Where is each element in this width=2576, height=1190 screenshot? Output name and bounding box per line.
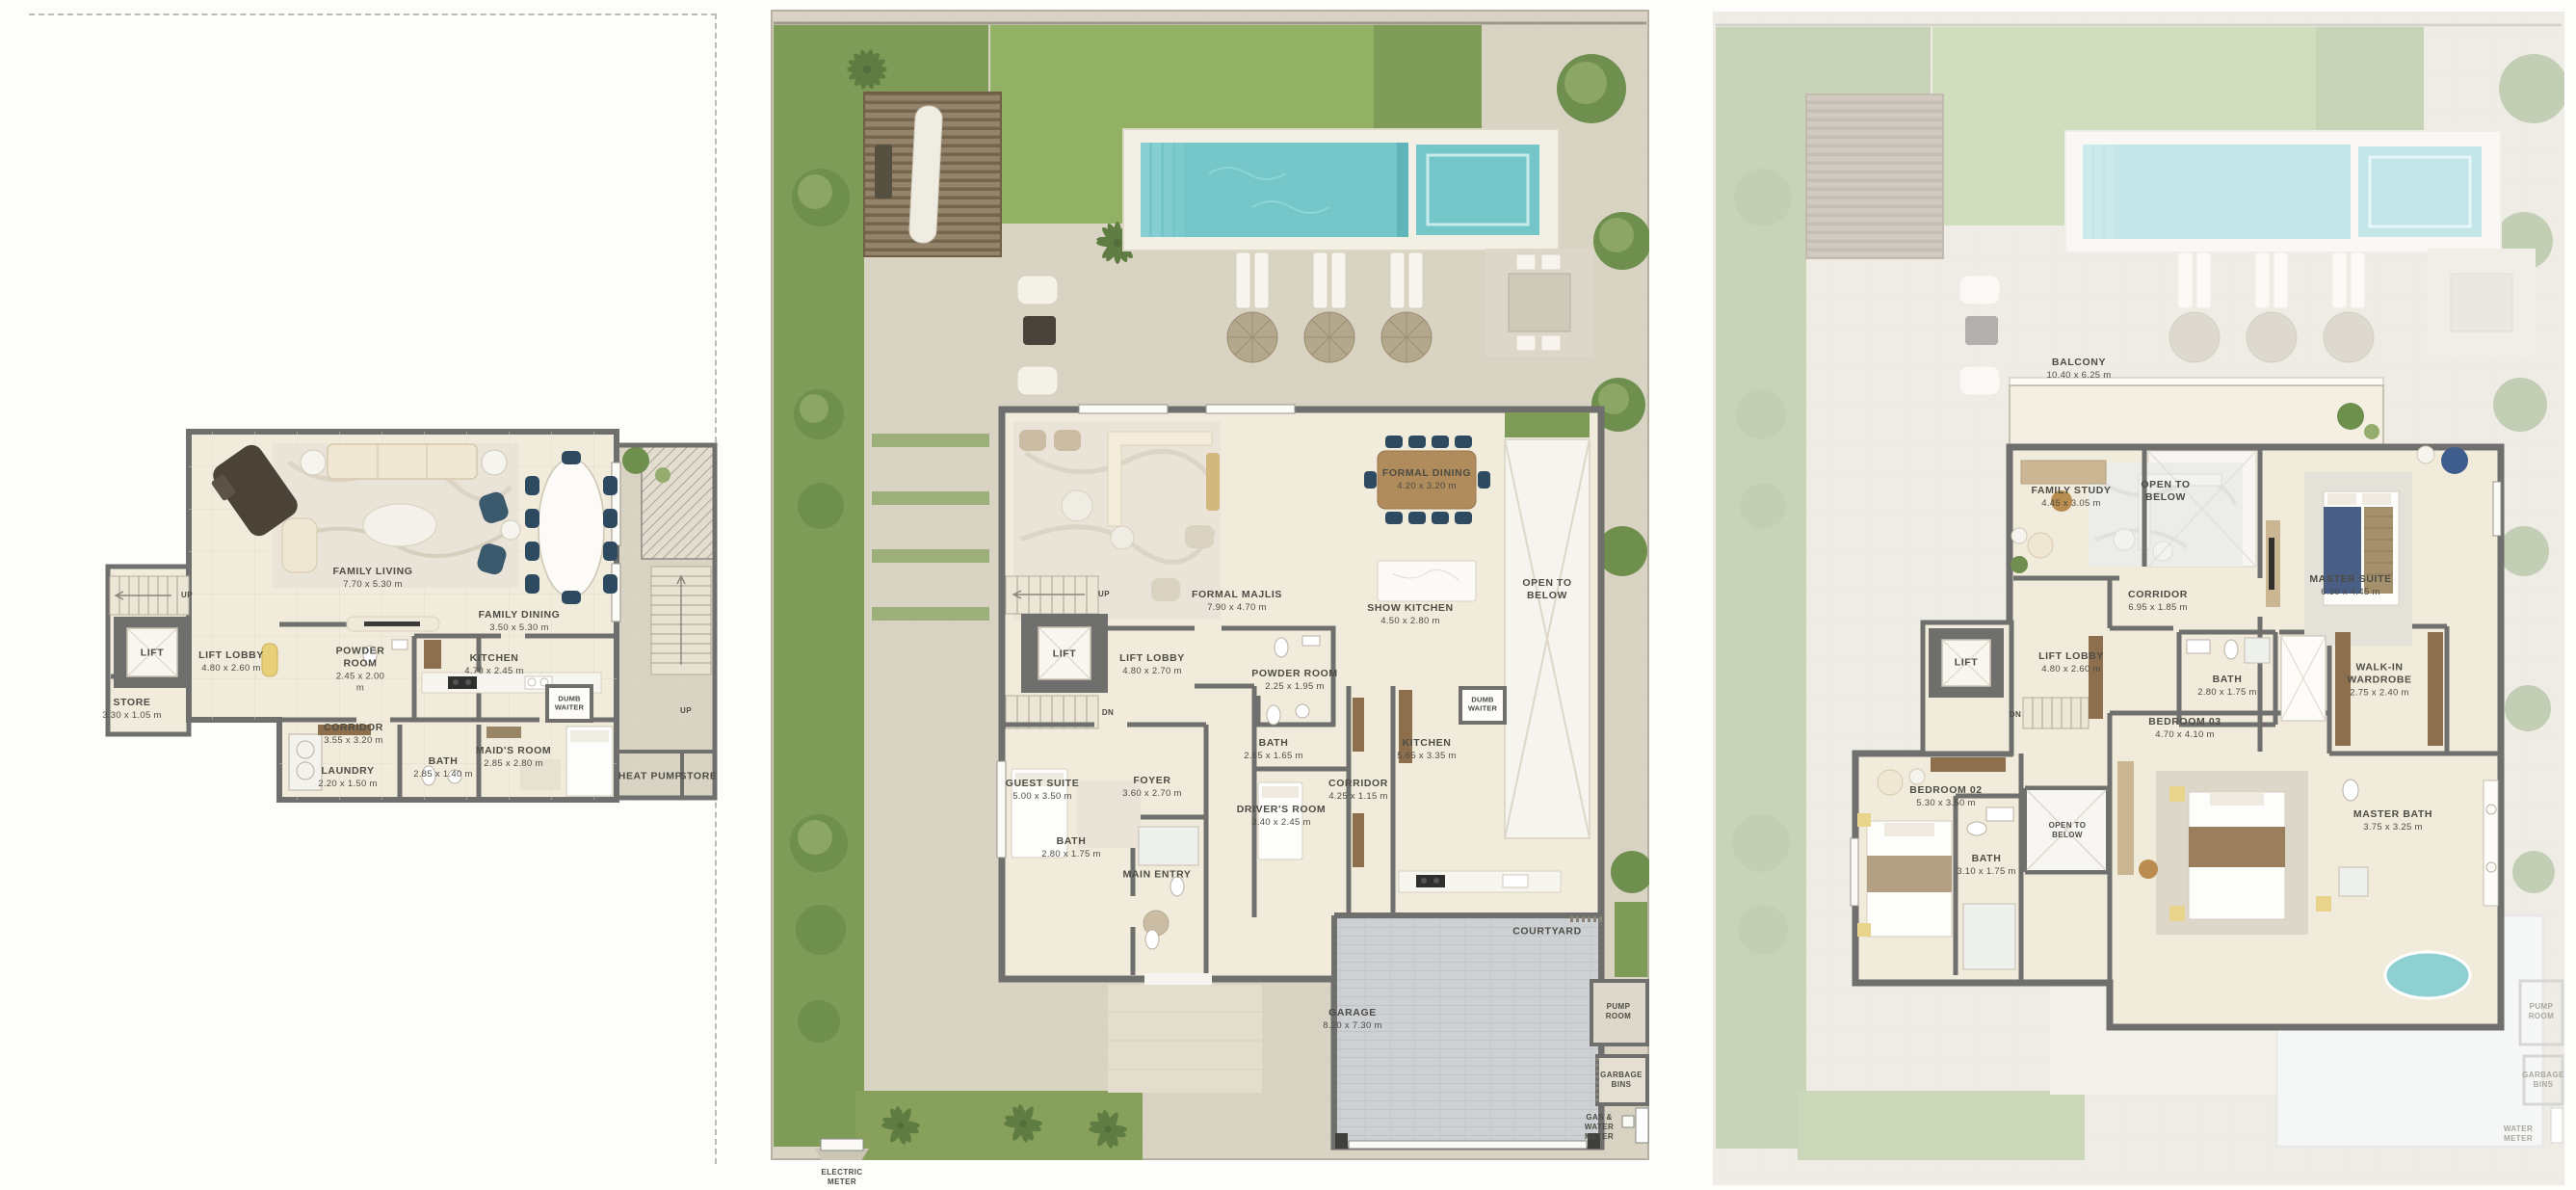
dumb-waiter-box <box>547 686 591 721</box>
terrace-plant <box>622 447 649 474</box>
courtyard-planter <box>1615 902 1647 977</box>
window <box>1206 405 1295 413</box>
pump-room-box <box>1591 981 1647 1045</box>
podium-terrace <box>617 443 715 800</box>
balcony-floor <box>2010 385 2383 449</box>
room-label-electric-meter: ELECTRIC METER <box>813 1168 871 1187</box>
terrace-stairs <box>651 567 711 674</box>
lift-shaft <box>114 617 191 688</box>
floor-plan-sheet: FAMILY LIVING7.70 x 5.30 m FAMILY DINING… <box>0 0 2576 1190</box>
window <box>612 463 620 545</box>
kids-pool <box>1416 145 1539 235</box>
garbage-bins-box <box>1597 1056 1647 1104</box>
entry-path <box>1108 985 1262 1093</box>
show-kitchen-island <box>1378 561 1476 601</box>
gas-water-meter-box <box>1636 1108 1648 1143</box>
lobby-console <box>262 644 277 676</box>
hatched-roof-area <box>642 445 715 559</box>
room-name: ELECTRIC METER <box>813 1168 871 1187</box>
window <box>997 761 1006 858</box>
void-over-foyer <box>2027 790 2106 870</box>
terrace-plant-small <box>655 467 670 483</box>
swimming-pool <box>1123 129 1559 251</box>
dumb-waiter-box <box>1460 688 1505 723</box>
outdoor-dining <box>1485 249 1593 357</box>
corridor-console <box>318 725 371 735</box>
fire-pit-chairs <box>1017 276 1058 395</box>
bathtub <box>2385 952 2470 998</box>
pergola <box>864 93 1001 256</box>
main-entry-door <box>1144 973 1212 985</box>
planter <box>1505 412 1590 437</box>
first-floor-plan-graphic <box>1713 12 2564 1185</box>
podium-plan-graphic <box>92 414 727 809</box>
ground-floor-plan-graphic <box>771 10 1649 1160</box>
window <box>1079 405 1168 413</box>
void-over-majlis <box>2089 451 2256 567</box>
podium-house <box>108 432 620 800</box>
garage-door <box>1349 1141 1587 1149</box>
lobby-stairs <box>110 576 189 615</box>
